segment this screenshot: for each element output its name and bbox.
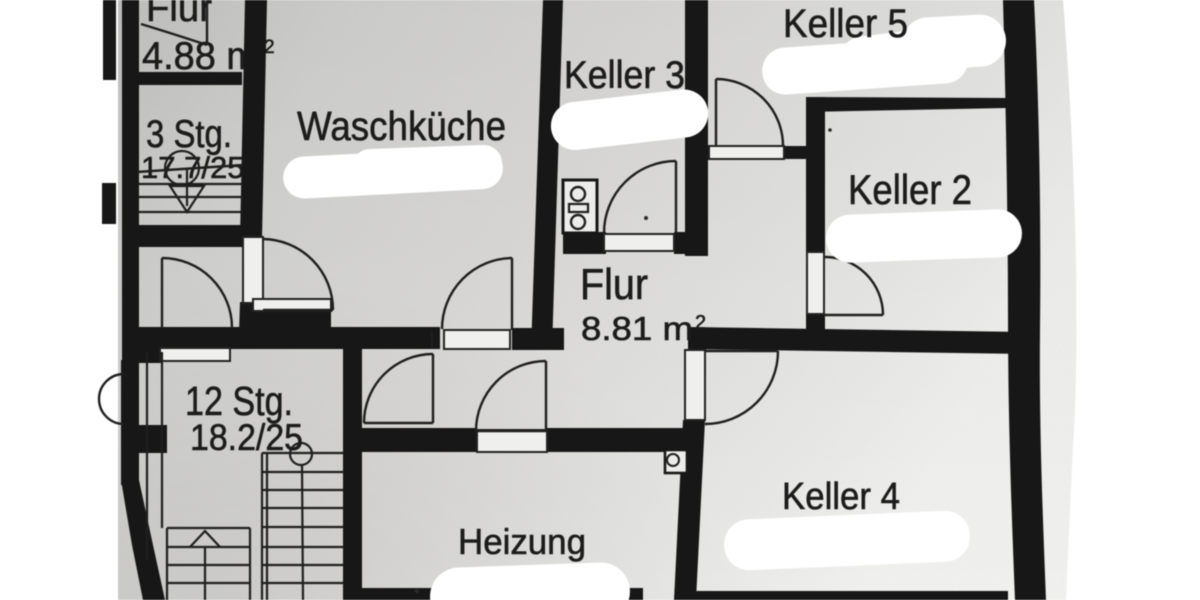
svg-text:Waschküche: Waschküche — [297, 103, 506, 149]
svg-text:Keller 4: Keller 4 — [782, 476, 900, 518]
svg-text:Heizung: Heizung — [458, 521, 586, 562]
svg-text:Keller 3: Keller 3 — [564, 54, 685, 97]
svg-text:2: 2 — [695, 312, 706, 334]
svg-text:3 Stg.: 3 Stg. — [146, 113, 232, 156]
svg-text:Keller 2: Keller 2 — [848, 166, 972, 213]
svg-text:Keller 5: Keller 5 — [783, 2, 908, 46]
svg-text:18.2/25: 18.2/25 — [190, 417, 303, 458]
svg-text:Flur: Flur — [146, 0, 212, 30]
svg-text:8.81 m: 8.81 m — [581, 310, 693, 347]
svg-text:Flur: Flur — [580, 260, 648, 309]
